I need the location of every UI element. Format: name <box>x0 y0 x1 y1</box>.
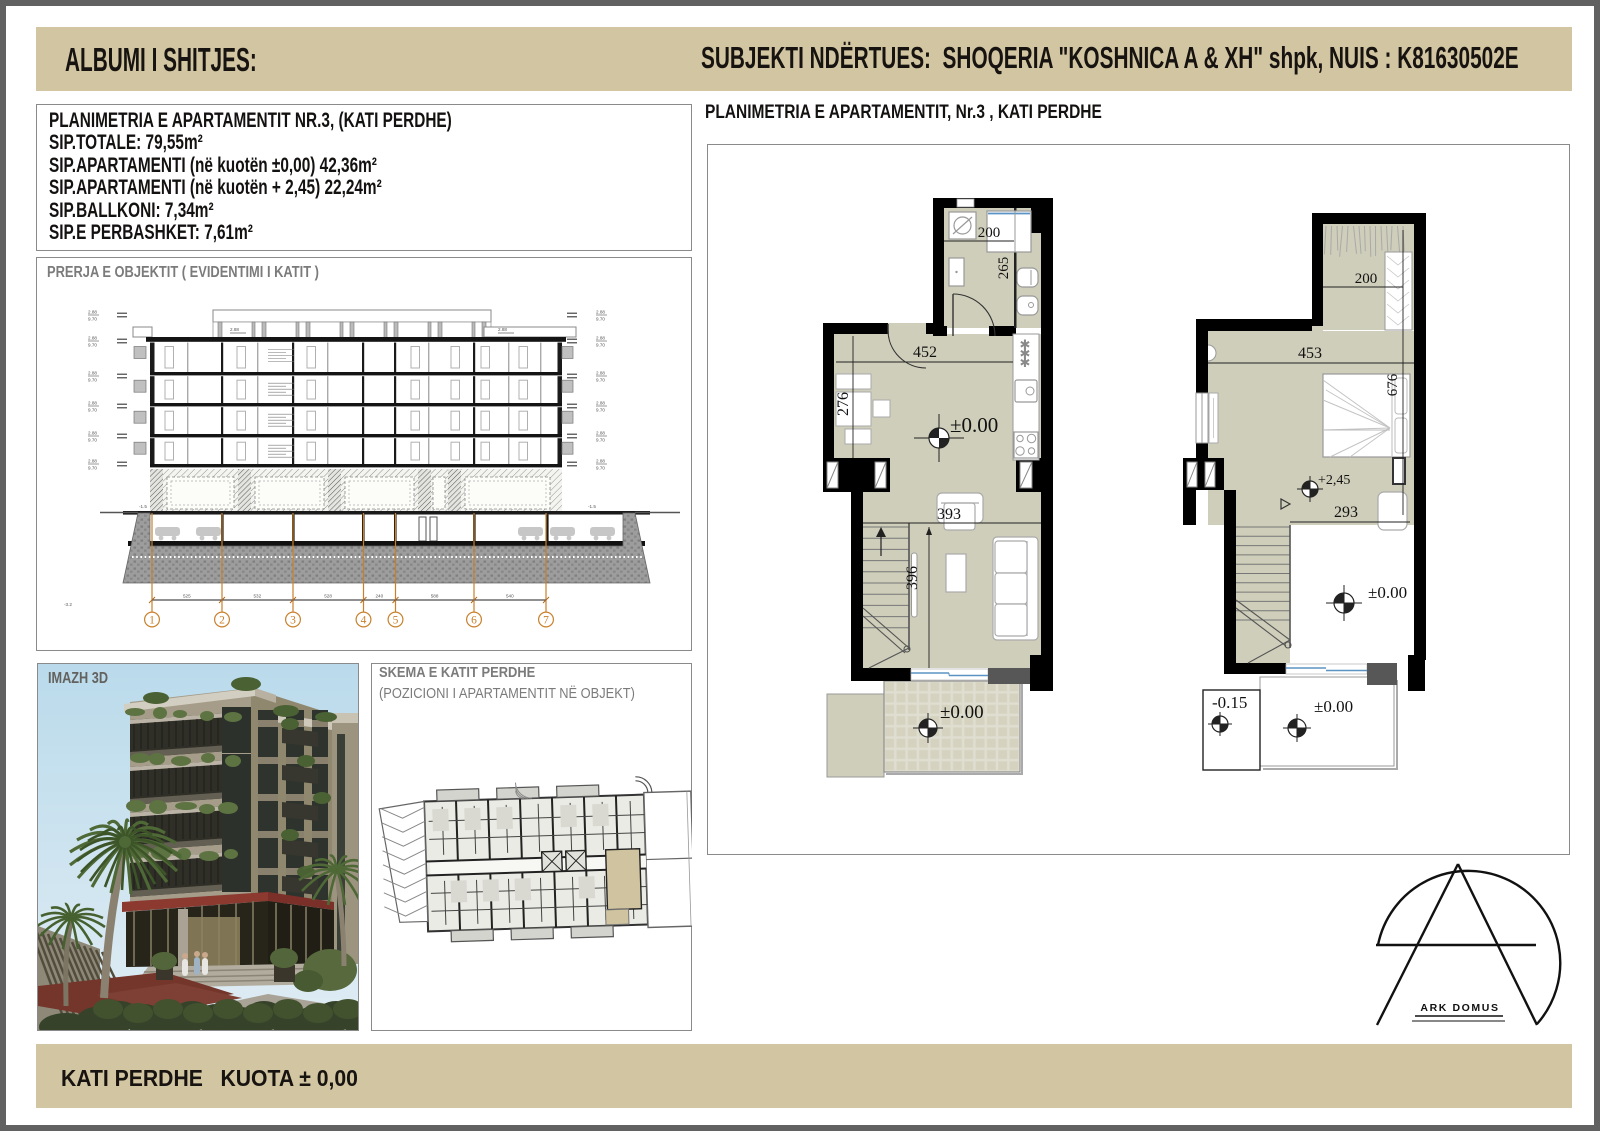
svg-text:2.88: 2.88 <box>498 327 507 332</box>
svg-text:588: 588 <box>431 594 439 599</box>
svg-text:540: 540 <box>506 594 514 599</box>
svg-text:-1.5: -1.5 <box>139 504 147 509</box>
svg-text:9.70: 9.70 <box>88 343 97 348</box>
svg-text:9.70: 9.70 <box>596 466 605 471</box>
svg-text:9.70: 9.70 <box>88 408 97 413</box>
svg-text:2.88: 2.88 <box>88 459 97 464</box>
svg-text:2.88: 2.88 <box>88 371 97 376</box>
svg-text:2.88: 2.88 <box>88 336 97 341</box>
svg-text:676: 676 <box>1385 373 1401 396</box>
svg-text:9.70: 9.70 <box>88 378 97 383</box>
svg-text:2.88: 2.88 <box>596 310 605 315</box>
svg-text:4: 4 <box>361 615 367 627</box>
svg-text:5: 5 <box>393 615 399 627</box>
svg-text:9.70: 9.70 <box>88 466 97 471</box>
svg-text:-1.5: -1.5 <box>588 504 596 509</box>
svg-text:-3.2: -3.2 <box>64 602 72 607</box>
svg-text:200: 200 <box>978 225 1001 241</box>
svg-text:2.88: 2.88 <box>230 327 239 332</box>
svg-text:396: 396 <box>904 566 921 590</box>
svg-text:3: 3 <box>290 615 296 627</box>
svg-text:2.88: 2.88 <box>596 431 605 436</box>
svg-text:240: 240 <box>376 594 384 599</box>
svg-text:2.88: 2.88 <box>596 459 605 464</box>
svg-text:1: 1 <box>149 615 155 627</box>
svg-text:2: 2 <box>219 615 225 627</box>
svg-text:2.88: 2.88 <box>88 401 97 406</box>
svg-text:528: 528 <box>324 594 332 599</box>
svg-text:2.88: 2.88 <box>88 310 97 315</box>
svg-text:-0.15: -0.15 <box>1212 693 1247 712</box>
svg-text:7: 7 <box>543 615 549 627</box>
svg-text:393: 393 <box>937 506 961 523</box>
svg-text:453: 453 <box>1298 345 1322 362</box>
svg-text:±0.00: ±0.00 <box>1314 697 1353 716</box>
svg-text:200: 200 <box>1355 271 1378 287</box>
svg-text:9.70: 9.70 <box>596 317 605 322</box>
svg-text:9.70: 9.70 <box>88 438 97 443</box>
svg-text:2.88: 2.88 <box>88 431 97 436</box>
svg-text:2.88: 2.88 <box>596 371 605 376</box>
svg-text:2.88: 2.88 <box>596 401 605 406</box>
svg-text:9.70: 9.70 <box>596 378 605 383</box>
svg-text:276: 276 <box>835 392 852 416</box>
svg-text:±0.00: ±0.00 <box>950 413 998 437</box>
svg-text:532: 532 <box>254 594 262 599</box>
svg-text:293: 293 <box>1334 504 1358 521</box>
svg-text:2.88: 2.88 <box>596 336 605 341</box>
svg-text:±0.00: ±0.00 <box>940 702 984 723</box>
svg-text:525: 525 <box>183 594 191 599</box>
svg-text:+2,45: +2,45 <box>1318 473 1350 488</box>
svg-text:✱: ✱ <box>1020 355 1031 370</box>
svg-text:9.70: 9.70 <box>596 438 605 443</box>
svg-text:±0.00: ±0.00 <box>1368 583 1407 602</box>
svg-text:9.70: 9.70 <box>596 343 605 348</box>
svg-text:452: 452 <box>913 344 937 361</box>
svg-text:265: 265 <box>996 257 1012 280</box>
svg-text:6: 6 <box>471 615 477 627</box>
svg-text:9.70: 9.70 <box>88 317 97 322</box>
svg-text:9.70: 9.70 <box>596 408 605 413</box>
svg-text:ARK DOMUS: ARK DOMUS <box>1420 1002 1499 1014</box>
